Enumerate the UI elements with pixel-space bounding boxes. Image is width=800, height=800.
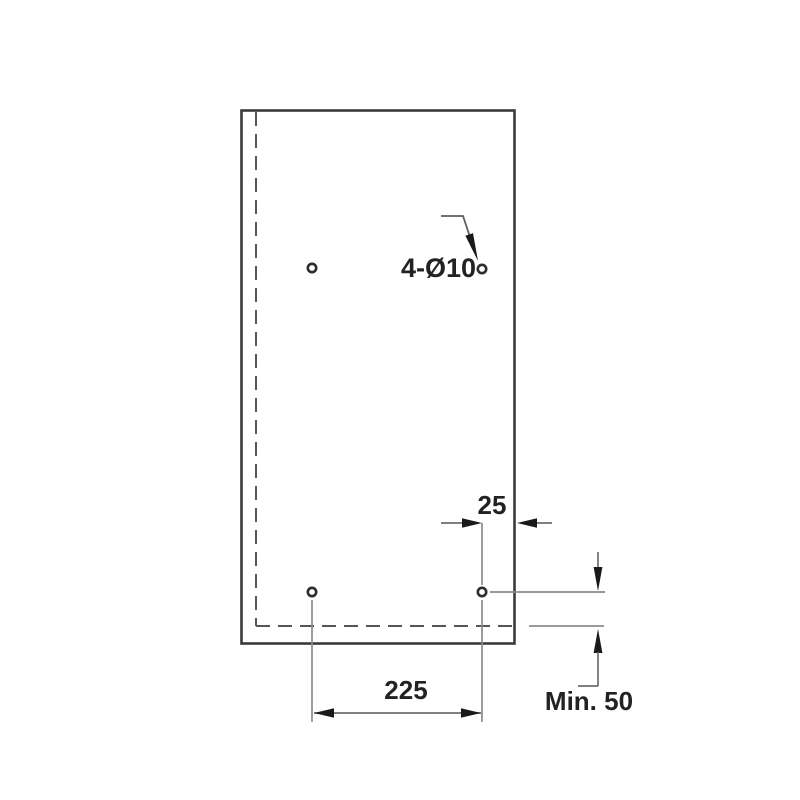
dim-225-label: 225: [384, 675, 427, 705]
min-50-up-arrowhead-icon: [594, 629, 603, 653]
dim-225-arrowhead-right-icon: [461, 708, 481, 718]
dim-25-label: 25: [478, 490, 507, 520]
hole-top-right: [478, 265, 486, 273]
technical-drawing: 4-Ø10 25 225 Min. 50: [0, 0, 800, 800]
min-50-label: Min. 50: [545, 686, 633, 716]
dim-225-arrowhead-left-icon: [314, 708, 334, 718]
dim-25-arrowhead-left-pointing-icon: [517, 518, 537, 528]
hole-bottom-right: [478, 588, 486, 596]
panel-outline: [242, 111, 515, 644]
drawing-canvas: 4-Ø10 25 225 Min. 50: [0, 0, 800, 800]
min-50-down-arrowhead-icon: [594, 567, 603, 591]
hole-top-left: [308, 264, 316, 272]
hole-spec-label: 4-Ø10: [401, 253, 476, 283]
hole-bottom-left: [308, 588, 316, 596]
